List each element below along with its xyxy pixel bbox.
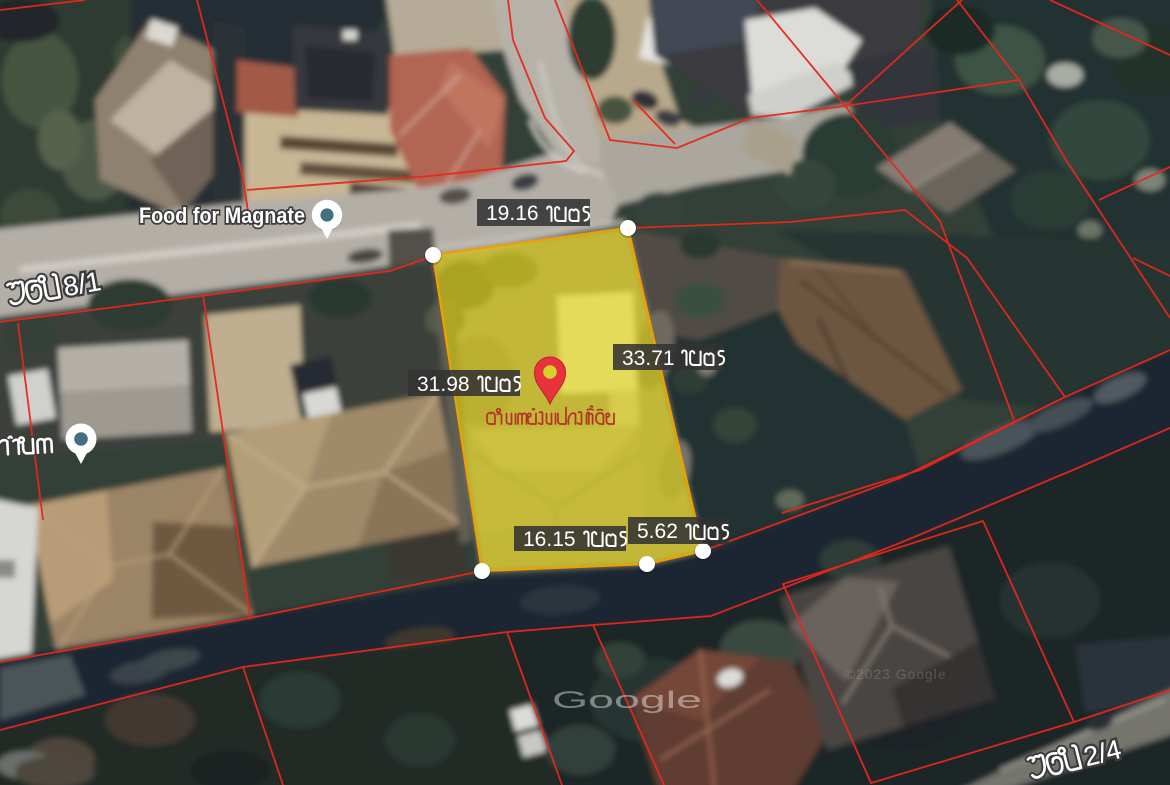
svg-text:31.98: 31.98 — [417, 373, 470, 396]
svg-text:5.62: 5.62 — [637, 520, 678, 543]
svg-text:16.15: 16.15 — [523, 528, 576, 551]
svg-text:©2023 Google: ©2023 Google — [845, 667, 947, 682]
svg-text:8/1: 8/1 — [61, 266, 103, 302]
svg-text:Google: Google — [552, 687, 702, 714]
svg-text:19.16: 19.16 — [486, 202, 539, 225]
svg-text:33.71: 33.71 — [622, 347, 675, 370]
svg-text:Food for Magnate: Food for Magnate — [139, 203, 305, 228]
